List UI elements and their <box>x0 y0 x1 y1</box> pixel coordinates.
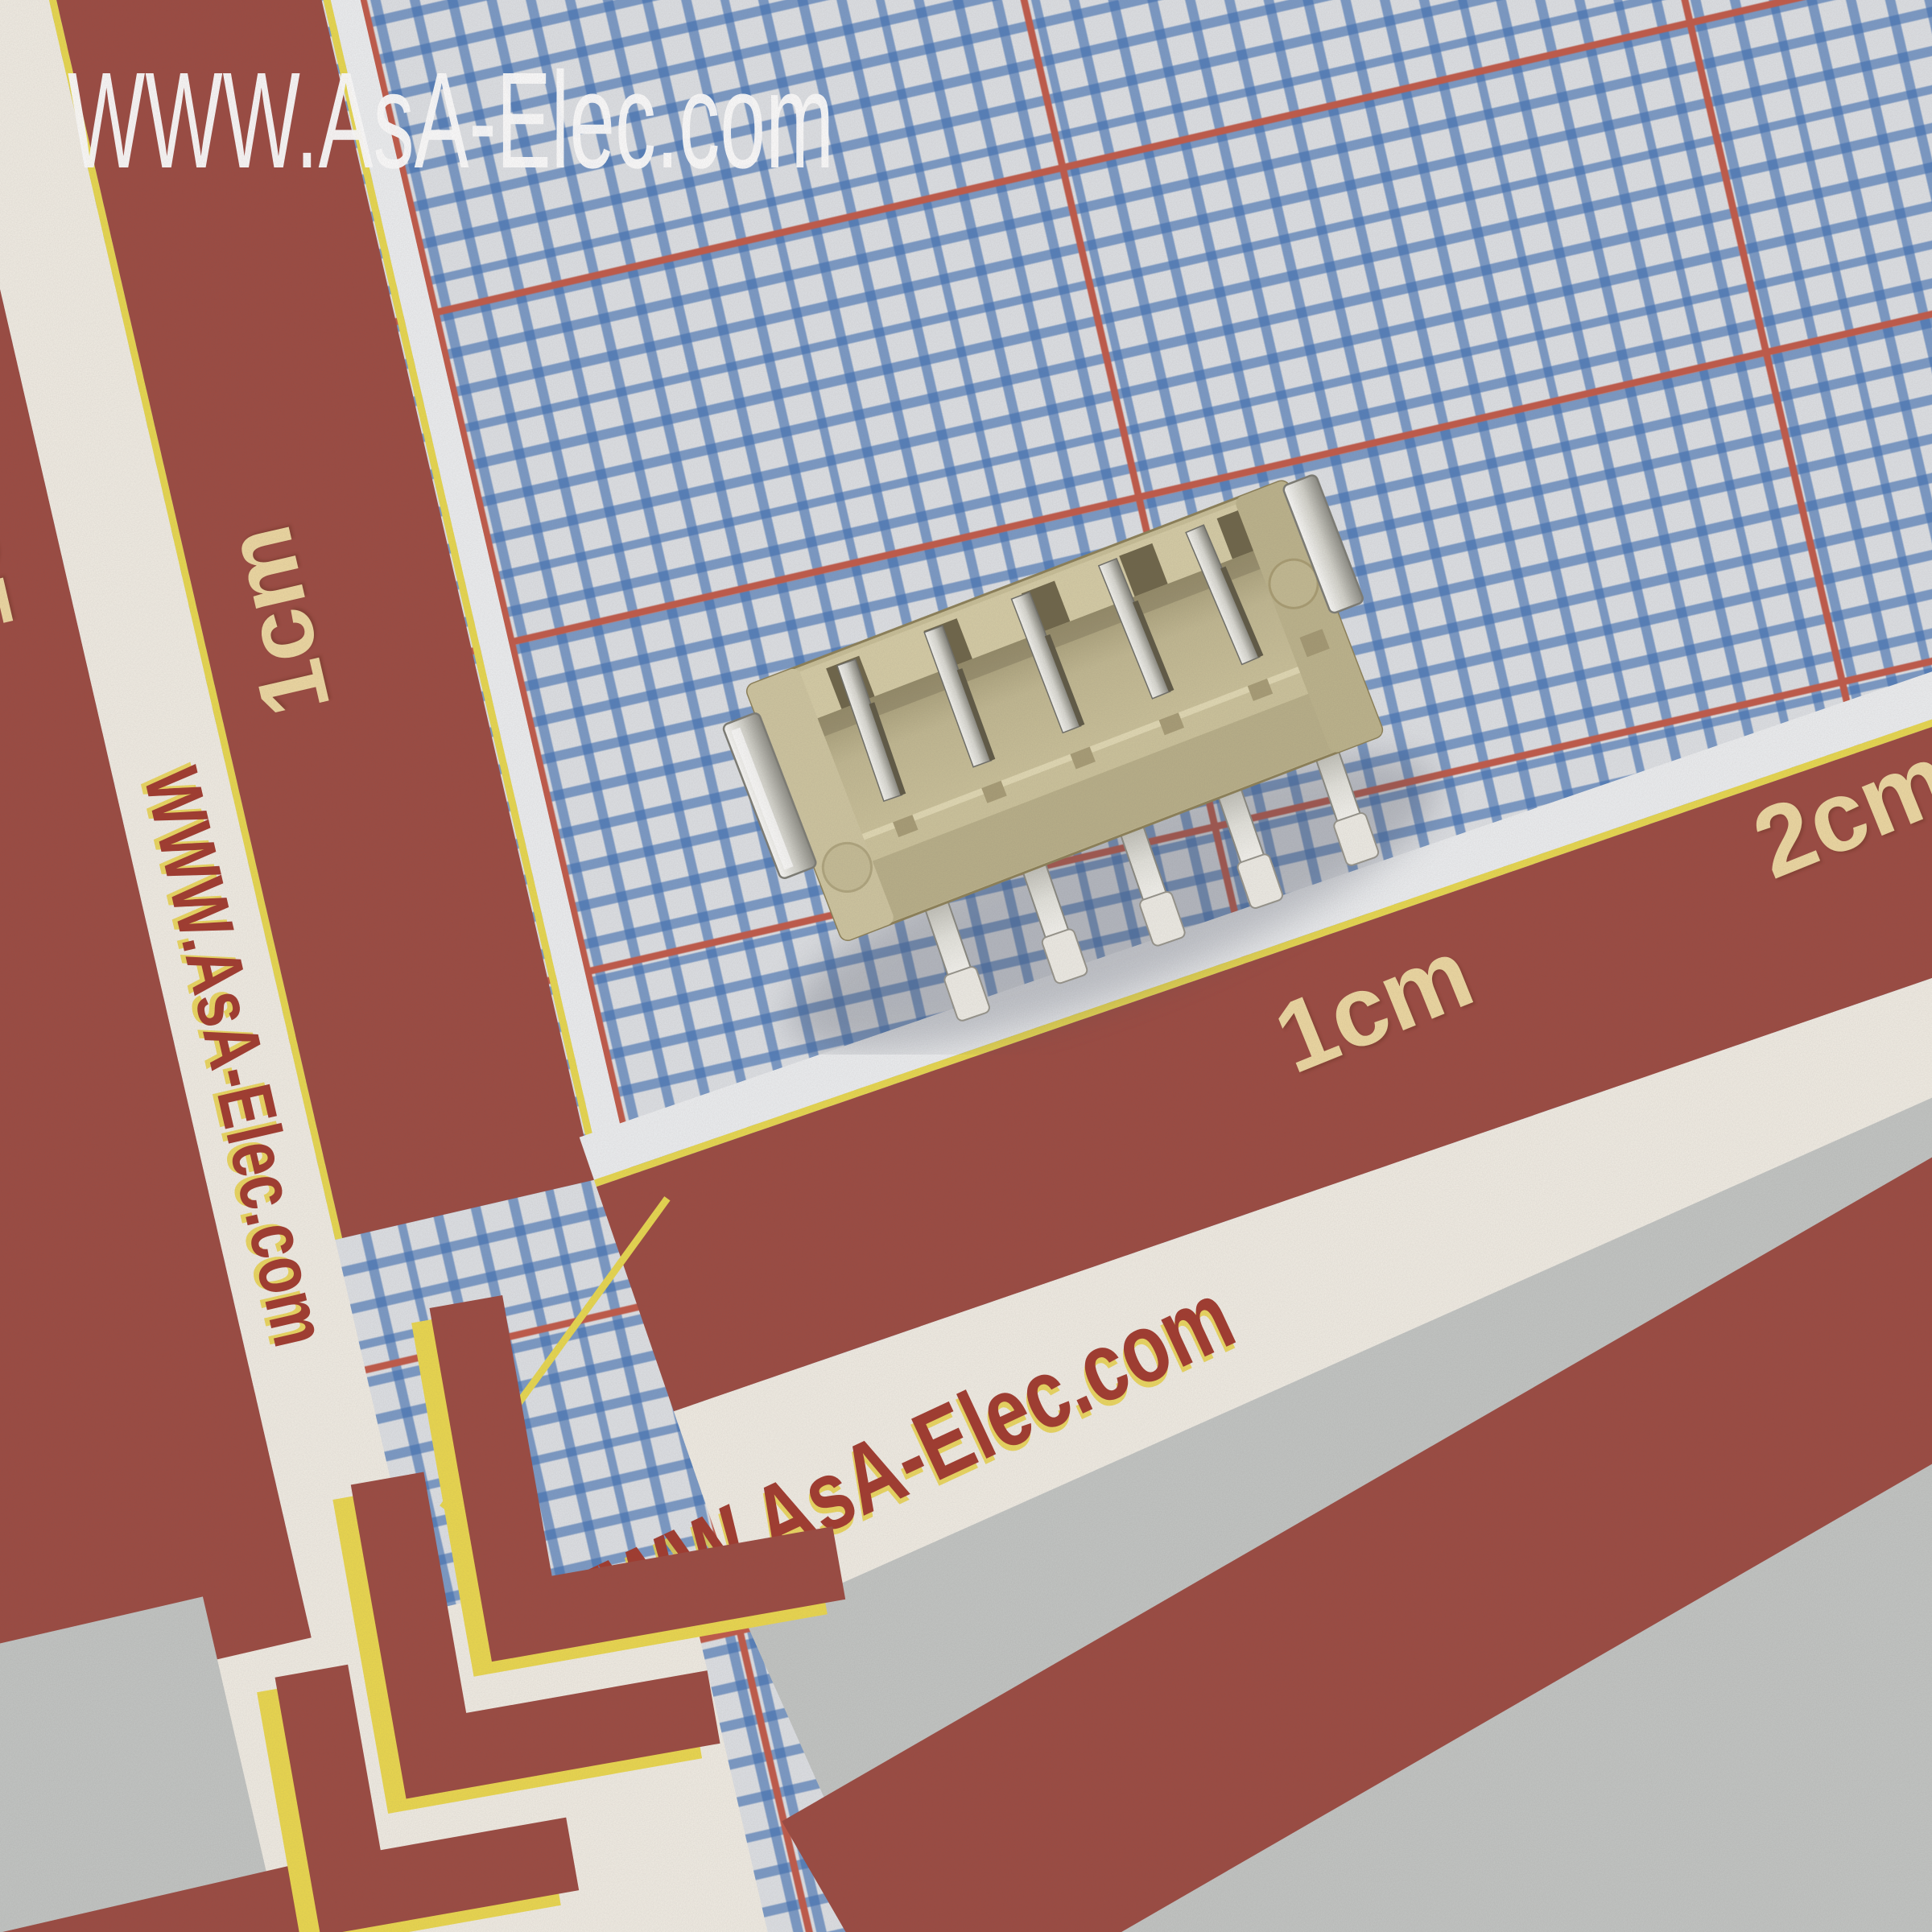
connector-photo <box>660 346 1465 1059</box>
photo-watermark-overlay: WWW.AsA-Elec.com <box>68 42 834 200</box>
connector-svg <box>660 346 1465 1055</box>
chevron-arrows <box>227 1229 906 1905</box>
photo-stage: 1cm 2cm WWW.AsA-Elec.com 1cm 1cm WWW.AsA… <box>0 0 1932 1932</box>
